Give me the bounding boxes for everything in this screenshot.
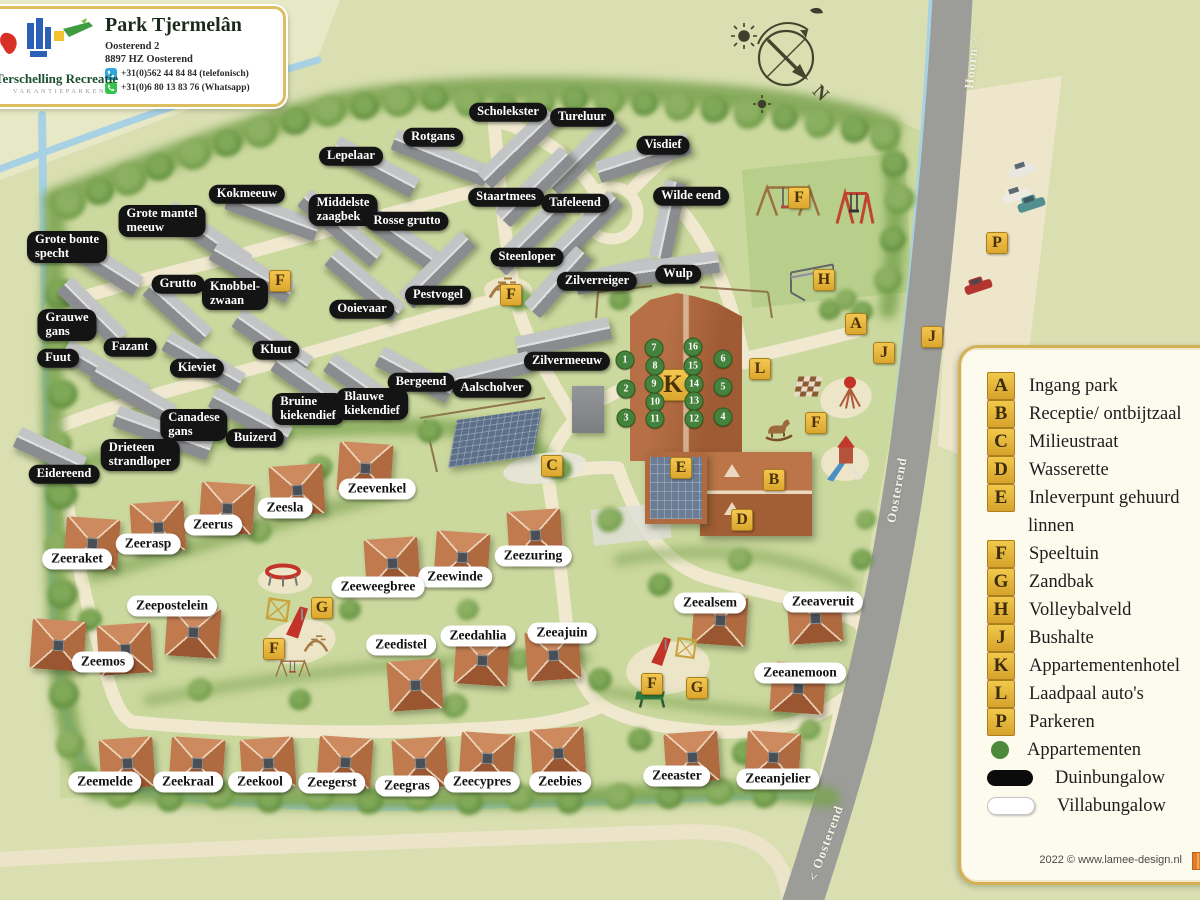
chimney bbox=[292, 485, 304, 497]
chimney bbox=[477, 655, 489, 667]
playground-horse-icon bbox=[760, 412, 796, 451]
villa-label: Zeeweegbree bbox=[332, 577, 425, 598]
tree bbox=[289, 689, 311, 711]
chimney bbox=[53, 640, 65, 652]
legend-label: Duinbungalow bbox=[1055, 768, 1165, 789]
chimney bbox=[793, 683, 805, 695]
chimney bbox=[482, 753, 494, 765]
chimney bbox=[122, 758, 134, 770]
villa-label: Zeegerst bbox=[298, 773, 365, 794]
tree bbox=[657, 784, 683, 810]
legend-label: Parkeren bbox=[1029, 712, 1095, 733]
marker-f: F bbox=[641, 673, 663, 695]
lamee-design-logo bbox=[1192, 852, 1200, 870]
bungalow-label: Kokmeeuw bbox=[209, 185, 285, 204]
car-icon bbox=[1014, 193, 1048, 220]
marker-f: F bbox=[269, 270, 291, 292]
legend-label: Zandbak bbox=[1029, 572, 1094, 593]
tree bbox=[851, 549, 873, 571]
marker-p: P bbox=[986, 232, 1008, 254]
legend-key: L bbox=[987, 680, 1015, 708]
chimney bbox=[768, 752, 780, 764]
apartment-number: 15 bbox=[684, 357, 703, 376]
bungalow-label: Lepelaar bbox=[319, 147, 383, 166]
tree bbox=[86, 178, 114, 206]
legend-label: Villabungalow bbox=[1057, 796, 1166, 817]
tree bbox=[628, 728, 652, 752]
garage-building bbox=[572, 386, 604, 433]
design-credit: 2022 © www.lamee-design.nl bbox=[1039, 854, 1182, 866]
marker-g: G bbox=[311, 597, 333, 619]
legend-item: Villabungalow bbox=[987, 792, 1200, 820]
legend-label: Speeltuin bbox=[1029, 544, 1099, 565]
tree bbox=[880, 227, 906, 253]
legend-key: B bbox=[987, 400, 1015, 428]
tree bbox=[665, 92, 695, 122]
legend-item: HVolleybalveld bbox=[987, 596, 1200, 624]
villa-label: Zeevenkel bbox=[339, 479, 416, 500]
chimney bbox=[153, 522, 165, 534]
chimney bbox=[387, 558, 399, 570]
tree bbox=[56, 731, 84, 759]
legend-symbol-white-pill bbox=[987, 797, 1035, 815]
apartment-number: 16 bbox=[684, 338, 703, 357]
tree bbox=[457, 790, 483, 816]
reception-building bbox=[700, 452, 812, 536]
legend-item: AIngang park bbox=[987, 372, 1200, 400]
park-title: Park Tjermelân bbox=[105, 14, 250, 37]
chimney bbox=[548, 650, 560, 662]
tree bbox=[606, 783, 634, 811]
tree bbox=[728, 548, 752, 572]
tree bbox=[609, 289, 631, 311]
marker-g: G bbox=[686, 677, 708, 699]
bungalow-label: Knobbel-zwaan bbox=[202, 278, 268, 310]
tree bbox=[870, 122, 900, 152]
bungalow-label: Fuut bbox=[37, 349, 79, 368]
brand-logo-graphic bbox=[0, 15, 97, 71]
chimney bbox=[263, 758, 275, 770]
tree bbox=[701, 96, 729, 124]
playground-spring-icon bbox=[832, 371, 868, 416]
legend-label-line2: linnen bbox=[987, 512, 1200, 540]
brand-name: Terschelling Recreatie bbox=[0, 71, 118, 87]
tree bbox=[588, 668, 612, 692]
park-info-card: Terschelling Recreatie VAKANTIEPARKEN Pa… bbox=[0, 6, 286, 107]
apartment-number: 5 bbox=[714, 378, 733, 397]
villa-label: Zeewinde bbox=[418, 567, 492, 588]
villa-label: Zeezuring bbox=[495, 546, 572, 567]
compass-north-label: N bbox=[808, 81, 833, 106]
marker-b: B bbox=[763, 469, 785, 491]
bungalow-label: Scholekster bbox=[469, 103, 547, 122]
chimney bbox=[340, 757, 352, 769]
marker-f: F bbox=[805, 412, 827, 434]
tree bbox=[557, 789, 583, 815]
bungalow-label: Rosse grutto bbox=[365, 212, 448, 231]
brand-tagline: VAKANTIEPARKEN bbox=[13, 88, 106, 95]
moon-icon bbox=[810, 8, 823, 14]
tree bbox=[457, 599, 479, 621]
legend-label: Inleverpunt gehuurd bbox=[1029, 488, 1180, 509]
legend-item: DWasserette bbox=[987, 456, 1200, 484]
villa-label: Zeeanjelier bbox=[736, 769, 819, 790]
legend-item: KAppartementenhotel bbox=[987, 652, 1200, 680]
tree bbox=[113, 163, 147, 197]
villa-label: Zeeaster bbox=[643, 766, 710, 787]
tree bbox=[188, 678, 212, 702]
legend-item: LLaadpaal auto's bbox=[987, 680, 1200, 708]
tree bbox=[597, 507, 623, 533]
legend-label: Ingang park bbox=[1029, 376, 1118, 397]
bungalow-label: Kluut bbox=[252, 341, 299, 360]
marker-f: F bbox=[500, 284, 522, 306]
playground-arch-icon bbox=[300, 627, 332, 658]
villa-label: Zeepostelein bbox=[127, 596, 217, 617]
bungalow-label: Rotgans bbox=[403, 128, 463, 147]
tree bbox=[422, 86, 448, 112]
legend-key: P bbox=[987, 708, 1015, 736]
tree bbox=[46, 479, 78, 511]
tree bbox=[314, 96, 346, 128]
tree bbox=[48, 580, 78, 610]
legend-key: C bbox=[987, 428, 1015, 456]
chimney bbox=[410, 680, 422, 692]
marker-a: A bbox=[845, 313, 867, 335]
bungalow-label: Zilverreiger bbox=[557, 272, 637, 291]
legend-symbol-black-pill bbox=[987, 770, 1033, 786]
apartment-number: 2 bbox=[617, 380, 636, 399]
apartment-number: 7 bbox=[645, 339, 664, 358]
villa-label: Zeeaveruit bbox=[783, 592, 863, 613]
bungalow-label: Visdief bbox=[636, 136, 689, 155]
playground-chess-icon bbox=[791, 375, 825, 404]
address-line-1: Oosterend 2 bbox=[105, 40, 250, 53]
chimney bbox=[553, 748, 565, 760]
chimney bbox=[360, 463, 372, 475]
marker-j: J bbox=[873, 342, 895, 364]
villa-label: Zeeraket bbox=[42, 549, 112, 570]
marker-f: F bbox=[788, 187, 810, 209]
chimney bbox=[687, 752, 699, 764]
tree bbox=[49, 680, 79, 710]
legend-label: Receptie/ ontbijtzaal bbox=[1029, 404, 1182, 425]
chimney bbox=[222, 503, 234, 515]
chimney bbox=[188, 627, 200, 639]
apartment-number: 3 bbox=[617, 409, 636, 428]
tree bbox=[351, 93, 379, 121]
tree bbox=[442, 693, 468, 719]
marker-l: L bbox=[749, 358, 771, 380]
villa-label: Zeealsem bbox=[674, 593, 746, 614]
tree bbox=[282, 108, 310, 136]
bungalow-label: Staartmees bbox=[468, 188, 544, 207]
legend-label: Bushalte bbox=[1029, 628, 1094, 649]
apartment-number: 11 bbox=[646, 410, 665, 429]
villa-label: Zeemelde bbox=[68, 772, 141, 793]
playground-swingM-icon bbox=[833, 186, 879, 231]
tree bbox=[48, 380, 78, 410]
villa-label: Zeedahlia bbox=[440, 626, 515, 647]
legend-key: J bbox=[987, 624, 1015, 652]
bungalow-label: Eidereend bbox=[29, 465, 100, 484]
villa-label: Zeemos bbox=[72, 652, 134, 673]
tree bbox=[54, 189, 86, 221]
phone-number: +31(0)562 44 84 84 (telefonisch) bbox=[121, 69, 249, 79]
marker-d: D bbox=[731, 509, 753, 531]
apartment-number: 12 bbox=[685, 410, 704, 429]
bungalow-label: Blauwekiekendief bbox=[336, 388, 408, 420]
bungalow-label: Buizerd bbox=[226, 429, 284, 448]
bungalow-label: Grote mantelmeeuw bbox=[119, 205, 206, 237]
legend-item: PParkeren bbox=[987, 708, 1200, 736]
legend-label: Appartementenhotel bbox=[1029, 656, 1180, 677]
apartment-number: 1 bbox=[616, 351, 635, 370]
legend-label: Appartementen bbox=[1027, 740, 1141, 761]
bungalow-label: Grote bontespecht bbox=[27, 231, 107, 263]
tree bbox=[146, 154, 174, 182]
car-icon bbox=[961, 275, 995, 302]
villa-label: Zeesla bbox=[258, 498, 313, 519]
legend-item: BReceptie/ ontbijtzaal bbox=[987, 400, 1200, 428]
bungalow-label: Pestvogel bbox=[405, 286, 471, 305]
bungalow-label: Wulp bbox=[655, 265, 701, 284]
address-line-2: 8897 HZ Oosterend bbox=[105, 53, 250, 66]
tree bbox=[856, 510, 876, 530]
villa-label: Zeekraal bbox=[153, 772, 223, 793]
legend-key: K bbox=[987, 652, 1015, 680]
chimney bbox=[530, 530, 542, 542]
apartment-number: 4 bbox=[714, 408, 733, 427]
legend-item: Appartementen bbox=[987, 736, 1200, 764]
legend-label: Wasserette bbox=[1029, 460, 1109, 481]
bungalow-label: Grauwegans bbox=[37, 309, 96, 341]
villa-label: Zeecypres bbox=[444, 772, 520, 793]
marker-j: J bbox=[921, 326, 943, 348]
bungalow-label: Grutto bbox=[152, 275, 205, 294]
tree bbox=[882, 152, 908, 178]
legend-item: FSpeeltuin bbox=[987, 540, 1200, 568]
tree bbox=[214, 130, 242, 158]
apartment-number: 8 bbox=[646, 357, 665, 376]
bungalow-label: Ooievaar bbox=[329, 300, 394, 319]
legend-item: CMilieustraat bbox=[987, 428, 1200, 456]
villabungalow-building bbox=[386, 658, 443, 712]
tree bbox=[885, 185, 915, 215]
legend-label: Laadpaal auto's bbox=[1029, 684, 1144, 705]
playground-tramp-icon bbox=[261, 560, 305, 595]
apartment-number: 13 bbox=[685, 392, 704, 411]
chimney bbox=[810, 613, 822, 625]
playground-tower-icon bbox=[823, 434, 867, 491]
apartment-number: 6 bbox=[714, 350, 733, 369]
map-legend: AIngang parkBReceptie/ ontbijtzaalCMilie… bbox=[958, 345, 1200, 885]
bungalow-label: Tureluur bbox=[550, 108, 614, 127]
bungalow-label: Fazant bbox=[104, 338, 157, 357]
legend-item: EInleverpunt gehuurd bbox=[987, 484, 1200, 512]
villa-label: Zeerus bbox=[184, 515, 242, 536]
legend-key: F bbox=[987, 540, 1015, 568]
bungalow-label: Canadesegans bbox=[160, 409, 227, 441]
brand-logo: Terschelling Recreatie VAKANTIEPARKEN bbox=[0, 9, 103, 104]
legend-key: E bbox=[987, 484, 1015, 512]
bungalow-label: Drieteenstrandloper bbox=[101, 439, 180, 471]
tree bbox=[179, 139, 211, 171]
villa-label: Zeeajuin bbox=[527, 623, 596, 644]
chimney bbox=[415, 758, 427, 770]
bungalow-label: Zilvermeeuw bbox=[524, 352, 610, 371]
bungalow-label: Tafeleend bbox=[541, 194, 609, 213]
bungalow-label: Bruinekiekendief bbox=[272, 393, 344, 425]
legend-key: A bbox=[987, 372, 1015, 400]
marker-f: F bbox=[263, 638, 285, 660]
villa-label: Zeegras bbox=[375, 776, 439, 797]
tree bbox=[384, 86, 416, 118]
tree bbox=[799, 719, 821, 741]
tree bbox=[246, 117, 278, 149]
tree bbox=[648, 573, 672, 597]
legend-label: Volleybalveld bbox=[1029, 600, 1131, 621]
whatsapp-number: +31(0)6 80 13 83 76 (Whatsapp) bbox=[121, 83, 250, 93]
villa-label: Zeerasp bbox=[116, 534, 181, 555]
legend-key: G bbox=[987, 568, 1015, 596]
legend-key: D bbox=[987, 456, 1015, 484]
bungalow-label: Aalscholver bbox=[452, 379, 531, 398]
legend-label: Milieustraat bbox=[1029, 432, 1118, 453]
villa-label: Zeebies bbox=[529, 772, 591, 793]
legend-item: GZandbak bbox=[987, 568, 1200, 596]
villa-label: Zeedistel bbox=[366, 635, 436, 656]
tree bbox=[874, 266, 902, 294]
tree bbox=[418, 420, 442, 444]
chimney bbox=[192, 758, 204, 770]
villa-label: Zeekool bbox=[228, 772, 292, 793]
tree bbox=[706, 778, 734, 806]
villa-label: Zeeanemoon bbox=[754, 663, 846, 684]
tree bbox=[632, 91, 658, 117]
chimney bbox=[457, 552, 469, 564]
bungalow-label: Steenloper bbox=[491, 248, 564, 267]
car-icon bbox=[1005, 159, 1039, 186]
tree bbox=[339, 599, 361, 621]
apartment-number: 9 bbox=[645, 375, 664, 394]
playground-cube-icon bbox=[263, 594, 294, 629]
marker-c: C bbox=[541, 455, 563, 477]
legend-item: JBushalte bbox=[987, 624, 1200, 652]
bungalow-label: Kieviet bbox=[170, 359, 224, 378]
park-map: N Terschelling Recreatie bbox=[0, 0, 1200, 900]
legend-key: H bbox=[987, 596, 1015, 624]
marker-h: H bbox=[813, 269, 835, 291]
compass-rose: N bbox=[728, 2, 848, 122]
legend-symbol-dot bbox=[991, 741, 1009, 759]
marker-e: E bbox=[670, 457, 692, 479]
legend-item: Duinbungalow bbox=[987, 764, 1200, 792]
playground-cube-icon bbox=[672, 634, 699, 665]
chimney bbox=[715, 615, 727, 627]
bungalow-label: Wilde eend bbox=[653, 187, 729, 206]
